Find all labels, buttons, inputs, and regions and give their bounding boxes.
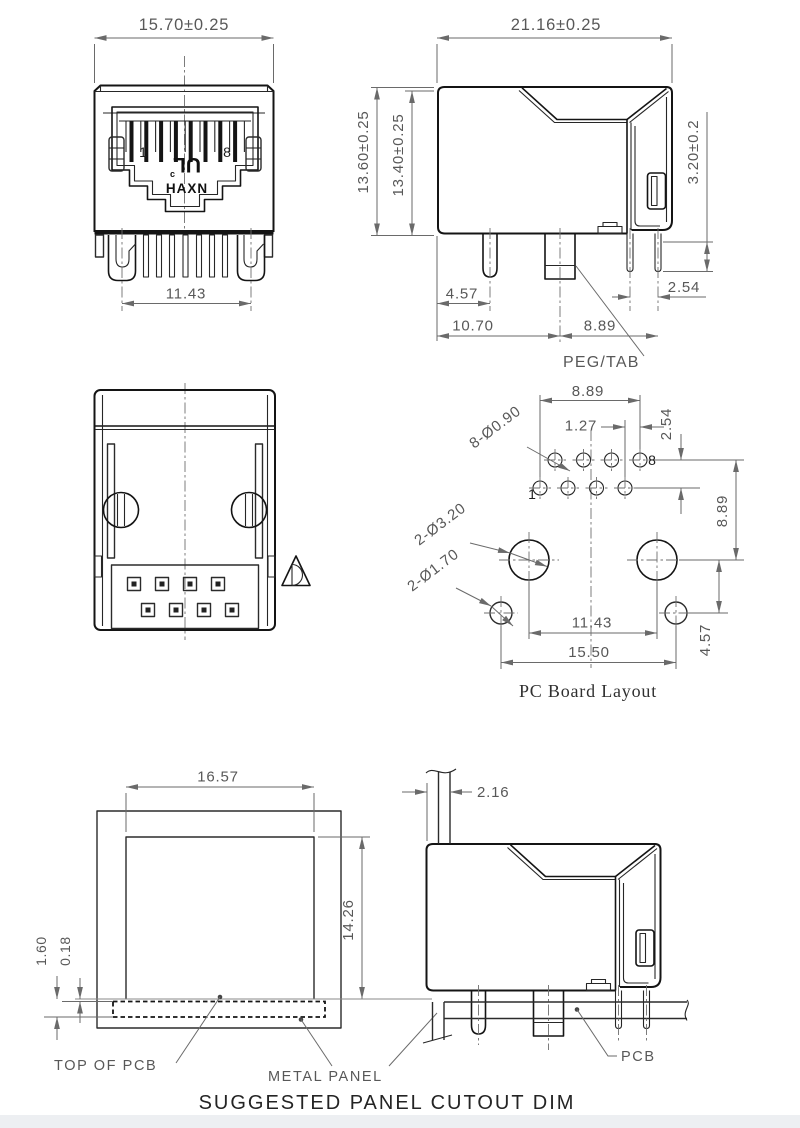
front-shield-span-dim: 11.43: [166, 286, 206, 303]
mounting-peg-left: [104, 493, 139, 528]
top-of-pcb-label: TOP OF PCB: [54, 1058, 157, 1074]
side-height-inner-dim: 13.40±0.25: [390, 114, 407, 197]
ul-mark: UL: [173, 153, 201, 176]
cutout-height-dim: 14.26: [340, 899, 357, 941]
pcb-peg-holes-label: 2-Ø3.20: [411, 500, 469, 550]
side-pin-span-dim: 8.89: [584, 318, 616, 335]
side-panel-stop-dim: 3.20±0.2: [685, 120, 702, 185]
sheet-title: SUGGESTED PANEL CUTOUT DIM: [199, 1092, 576, 1114]
pcb-pin-pitch-dim: 1.27: [565, 418, 597, 435]
side-height-outer-dim: 13.60±0.25: [355, 111, 372, 194]
mounting-peg-right: [232, 493, 267, 528]
panel-cutout-view: 16.57 14.26 1.60 0.18 TOP OF PCB METAL P…: [33, 769, 437, 1086]
pcb-layout-title: PC Board Layout: [519, 681, 657, 701]
side-pegtab-offset-dim: 10.70: [452, 318, 494, 335]
pcb-band: [444, 1000, 688, 1021]
gap-dim: 0.18: [57, 936, 73, 966]
peg-holes: [499, 532, 687, 588]
panel-thickness-dim: 2.16: [477, 784, 509, 801]
brand-label: HAXN: [166, 181, 208, 196]
connector-side-body: [438, 87, 672, 279]
side-peg-offset-dim: 4.57: [446, 286, 478, 303]
pin-holes: [529, 449, 651, 499]
pcb-peg-to-hole-dim: 4.57: [697, 624, 714, 656]
pcb-label: PCB: [621, 1049, 656, 1065]
pcb-hole-spacing-dim: 15.50: [568, 644, 610, 661]
shield-fingers: [144, 235, 228, 277]
pcb-peg-spacing-dim: 11.43: [572, 615, 612, 632]
pcb-pin8-label: 8: [648, 452, 656, 468]
pcb-pin1-label: 1: [528, 486, 536, 502]
pcb-layout-view: 8.89 1.27 2.54 8.89 4.57 11.43 15.50 8-Ø…: [404, 383, 744, 701]
front-pin1-label: 1: [139, 144, 147, 160]
ul-logo-icon: c UL: [170, 153, 201, 179]
pcb-mount-holes-label: 2-Ø1.70: [404, 546, 462, 596]
page-bottom-strip: [0, 1115, 800, 1128]
metal-panel-label: METAL PANEL: [268, 1069, 383, 1085]
cutout-outline: [126, 837, 314, 999]
pegtab-label: PEG/TAB: [563, 354, 640, 371]
front-pin8-label: 8: [223, 144, 231, 160]
pcb-row-to-peg-dim: 8.89: [714, 495, 731, 527]
bottom-view: [95, 383, 276, 640]
pcb-pin-span-dim: 8.89: [572, 383, 604, 400]
pcb-pin-holes-label: 8-Ø0.90: [466, 403, 524, 453]
side-pin-pitch-dim: 2.54: [668, 279, 700, 296]
technical-drawing: 15.70±0.25: [0, 0, 800, 1128]
drawing-sheet: 15.70±0.25: [0, 0, 800, 1128]
panel-side-view: 2.16 PCB: [402, 769, 688, 1065]
side-depth-dim: 21.16±0.25: [511, 16, 601, 34]
panel-cutout-dashed: [113, 1002, 325, 1018]
projection-symbol-icon: [282, 556, 310, 586]
pcb-edge-dim: 1.60: [33, 936, 49, 966]
cutout-width-dim: 16.57: [197, 769, 239, 786]
front-view: 15.70±0.25: [95, 16, 274, 311]
pcb-row-pitch-dim: 2.54: [658, 408, 675, 440]
front-width-dim: 15.70±0.25: [139, 16, 229, 34]
side-view: 21.16±0.25: [355, 16, 713, 371]
pin-squares: [128, 578, 239, 617]
